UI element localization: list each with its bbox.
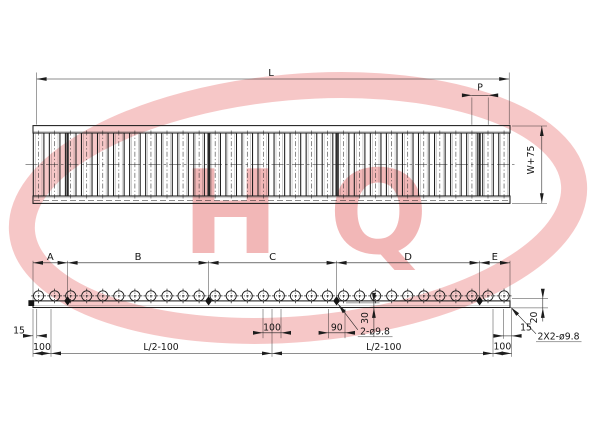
dim-right-hole-offset: 100 xyxy=(494,342,512,353)
joint-hole-diamond xyxy=(205,296,212,305)
segment-label-a: A xyxy=(47,252,54,263)
svg-text:20: 20 xyxy=(529,312,540,324)
dim-rail-height: 20 xyxy=(512,292,548,324)
segment-label-c: C xyxy=(269,252,276,263)
segment-label-e: E xyxy=(492,252,498,263)
svg-text:2X2-ø9.8: 2X2-ø9.8 xyxy=(537,332,579,343)
svg-text:90: 90 xyxy=(331,323,343,334)
svg-text:2-ø9.8: 2-ø9.8 xyxy=(360,327,390,338)
dim-left-end-offset: 15 xyxy=(13,326,45,337)
width-label: W+75 xyxy=(526,146,537,175)
dim-left-half-span: L/2-100 xyxy=(143,342,178,353)
watermark-logo: HQ xyxy=(12,63,585,352)
dim-right-end-offset: 15 xyxy=(495,322,532,336)
svg-text:100: 100 xyxy=(263,323,281,334)
conveyor-technical-drawing: HQ L P xyxy=(0,0,600,424)
dim-left-hole-offset: 100 xyxy=(33,342,51,353)
segment-label-b: B xyxy=(135,252,142,263)
drawing-canvas: HQ L P xyxy=(0,0,600,424)
pitch-label: P xyxy=(477,83,483,94)
end-stop-block xyxy=(28,300,34,306)
svg-text:30: 30 xyxy=(360,312,371,324)
segment-label-d: D xyxy=(404,252,412,263)
length-label: L xyxy=(268,68,274,79)
svg-text:15: 15 xyxy=(13,326,25,337)
dim-right-half-span: L/2-100 xyxy=(366,342,401,353)
